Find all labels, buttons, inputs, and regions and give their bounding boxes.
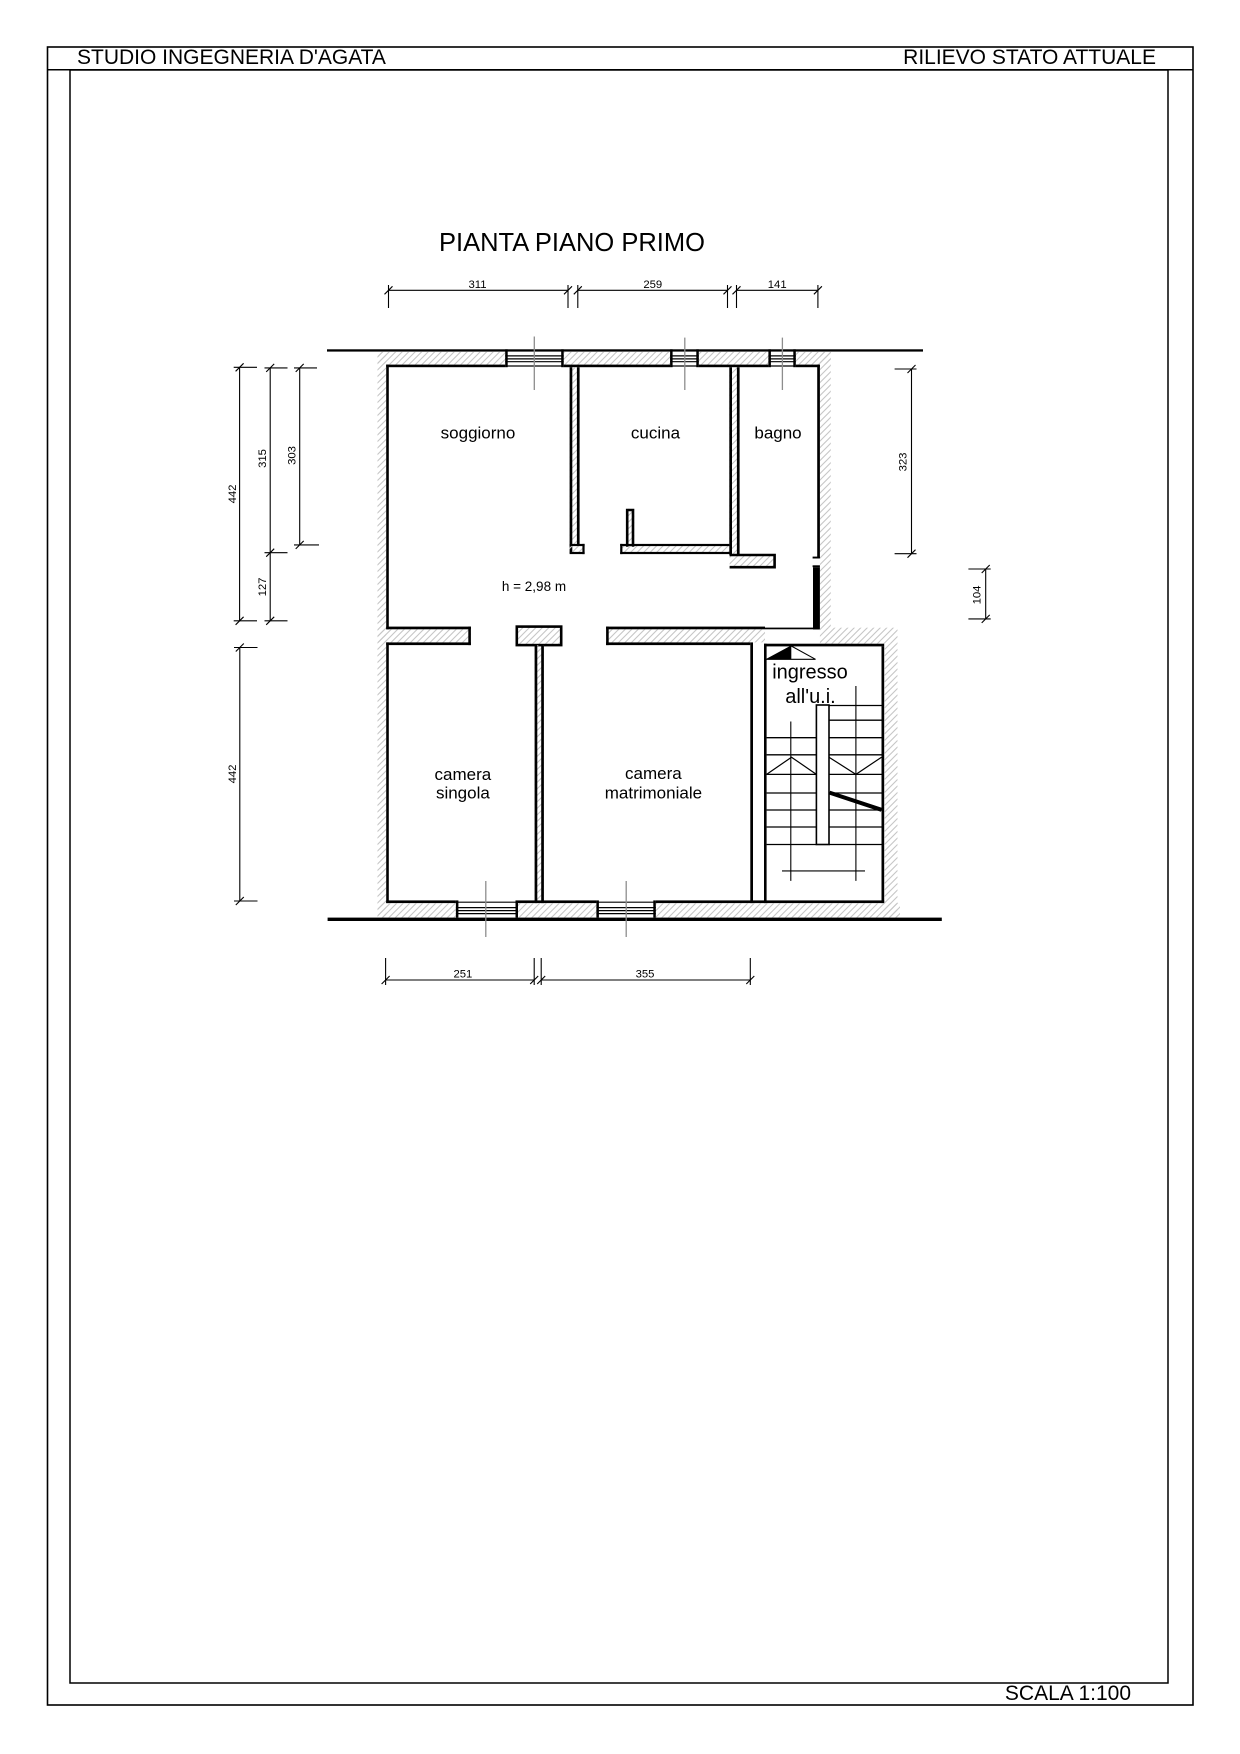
svg-text:soggiorno: soggiorno	[441, 424, 516, 443]
svg-text:355: 355	[636, 969, 655, 981]
svg-text:matrimoniale: matrimoniale	[605, 784, 702, 803]
svg-text:camera: camera	[625, 764, 682, 783]
svg-text:141: 141	[768, 279, 787, 291]
svg-text:315: 315	[257, 449, 269, 468]
svg-text:251: 251	[453, 969, 472, 981]
svg-text:singola: singola	[436, 784, 490, 803]
svg-text:bagno: bagno	[754, 424, 801, 443]
svg-text:STUDIO INGEGNERIA D'AGATA: STUDIO INGEGNERIA D'AGATA	[77, 46, 386, 69]
svg-text:all'u.i.: all'u.i.	[785, 686, 836, 708]
svg-text:442: 442	[227, 765, 239, 784]
svg-text:259: 259	[643, 279, 662, 291]
svg-text:camera: camera	[435, 765, 492, 784]
svg-text:PIANTA PIANO PRIMO: PIANTA PIANO PRIMO	[439, 229, 705, 257]
svg-text:h = 2,98 m: h = 2,98 m	[502, 579, 566, 594]
svg-text:127: 127	[257, 578, 269, 597]
svg-text:104: 104	[972, 586, 984, 605]
svg-text:323: 323	[898, 453, 910, 472]
svg-text:SCALA 1:100: SCALA 1:100	[1005, 1682, 1131, 1705]
svg-text:cucina: cucina	[631, 424, 681, 443]
svg-text:RILIEVO STATO ATTUALE: RILIEVO STATO ATTUALE	[903, 46, 1156, 69]
svg-text:442: 442	[227, 485, 239, 504]
svg-text:311: 311	[468, 279, 486, 291]
svg-text:ingresso: ingresso	[772, 662, 848, 684]
svg-text:303: 303	[287, 446, 299, 465]
